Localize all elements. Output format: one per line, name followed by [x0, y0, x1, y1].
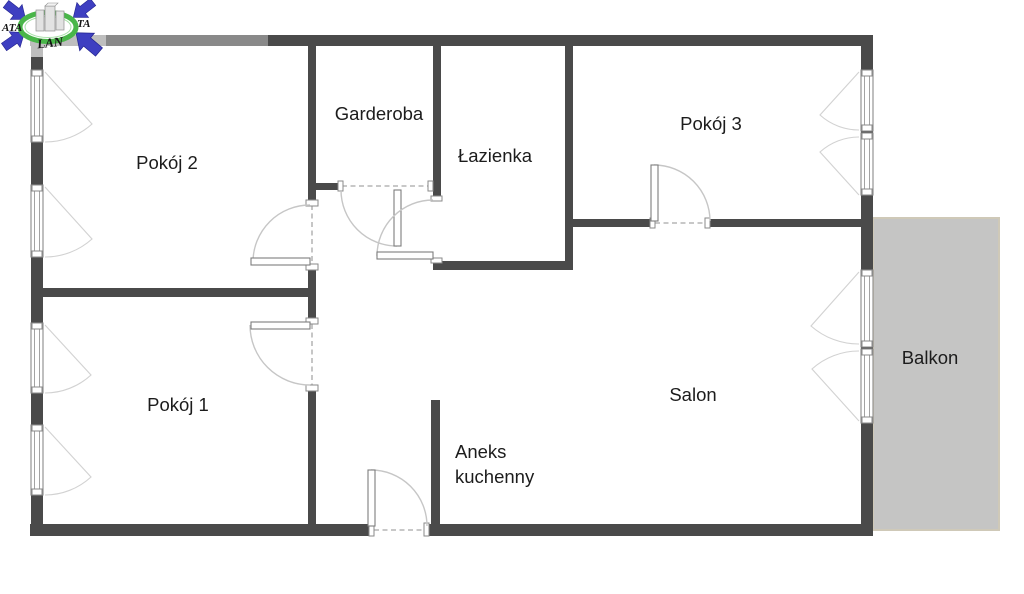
- room-label-aneks-line1: Aneks: [455, 441, 506, 462]
- door-panel-entrance: [368, 470, 375, 526]
- door-panel-pokoj3: [651, 165, 658, 221]
- room-label-pokoj3: Pokój 3: [680, 113, 742, 134]
- balcony-door-upper: [811, 270, 873, 347]
- walls: [30, 35, 873, 536]
- room-label-balkon: Balkon: [902, 347, 959, 368]
- window-pokoj3-lower: [820, 133, 873, 195]
- room-label-aneks-line2: kuchenny: [455, 466, 535, 487]
- door-panel-pokoj2: [251, 258, 310, 265]
- door-panel-lazienka: [377, 252, 433, 259]
- agency-logo-watermark: ATA TA LAN: [0, 0, 268, 61]
- door-opening-lazienka: [432, 199, 442, 259]
- window-pokoj1-upper: [31, 323, 91, 393]
- door-panel-garderoba: [394, 190, 401, 246]
- door-arc-pokoj1: [250, 325, 310, 385]
- logo-text-bottom: LAN: [35, 34, 64, 52]
- door-arc-lazienka: [377, 200, 433, 256]
- room-label-garderoba: Garderoba: [335, 103, 424, 124]
- logo-text-right: TA: [77, 18, 90, 30]
- wall-lazienka-bottom: [433, 261, 573, 270]
- floorplan-image: Pokój 2 Garderoba Łazienka Pokój 3 Pokój…: [0, 0, 1024, 594]
- wall-pokoj3-salon-divider: [565, 219, 873, 227]
- wall-pokoj1-pokoj2-divider: [43, 288, 316, 297]
- wall-lazienka-right: [565, 46, 573, 270]
- room-label-salon: Salon: [669, 384, 716, 405]
- door-arc-entrance: [371, 470, 427, 526]
- balcony-door-lower: [812, 349, 873, 423]
- room-label-pokoj1: Pokój 1: [147, 394, 209, 415]
- wall-corridor-left: [308, 46, 316, 524]
- room-label-lazienka: Łazienka: [458, 145, 533, 166]
- window-pokoj3-upper: [820, 70, 873, 131]
- door-panel-pokoj1: [251, 322, 310, 329]
- windows: [31, 70, 873, 495]
- door-arc-garderoba: [341, 190, 397, 246]
- window-pokoj2-upper: [31, 70, 92, 142]
- floorplan-svg: Pokój 2 Garderoba Łazienka Pokój 3 Pokój…: [0, 0, 1024, 594]
- wall-outer-bottom: [30, 524, 873, 536]
- window-pokoj2-lower: [31, 185, 92, 257]
- door-arc-pokoj3: [654, 165, 710, 221]
- wall-kitchen-partition: [431, 400, 440, 524]
- logo-text-left: ATA: [1, 22, 22, 34]
- room-label-pokoj2: Pokój 2: [136, 152, 198, 173]
- balcony-area: [873, 218, 999, 530]
- door-arc-pokoj2: [253, 205, 310, 262]
- window-pokoj1-lower: [31, 425, 91, 495]
